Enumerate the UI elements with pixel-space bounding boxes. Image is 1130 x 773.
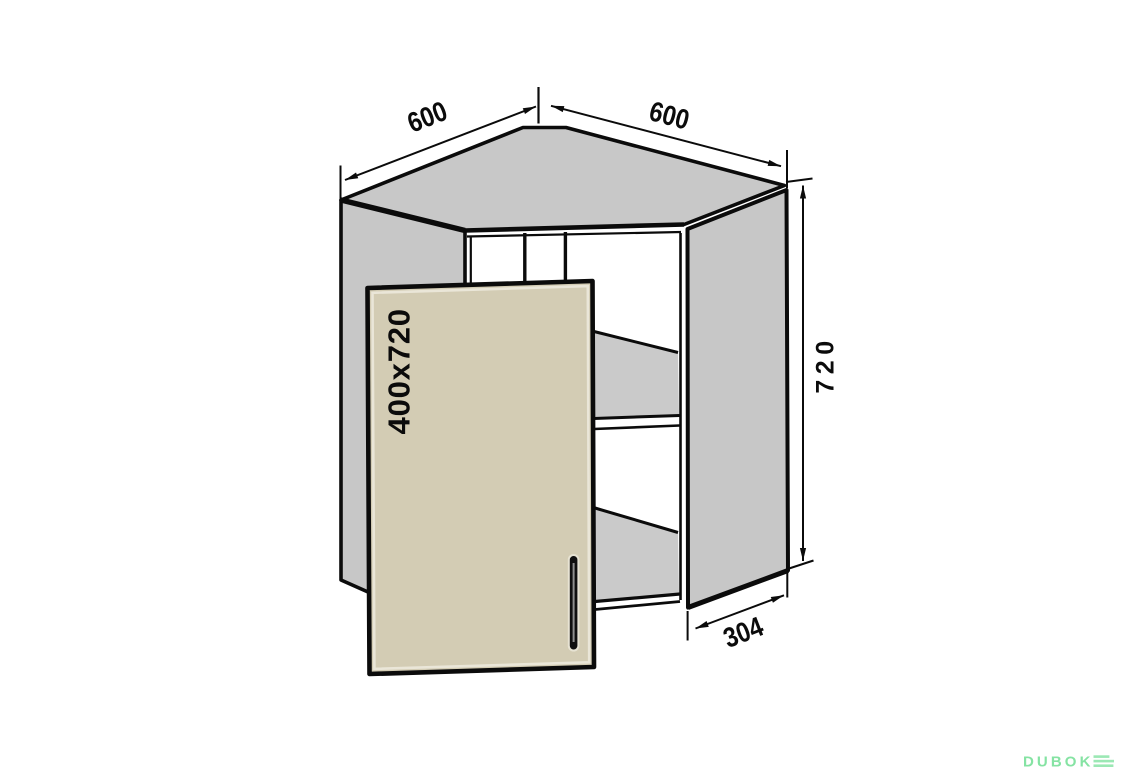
svg-text:720: 720 (812, 335, 840, 393)
svg-text:DUBOK: DUBOK (1023, 754, 1094, 771)
svg-text:400x720: 400x720 (382, 308, 417, 434)
